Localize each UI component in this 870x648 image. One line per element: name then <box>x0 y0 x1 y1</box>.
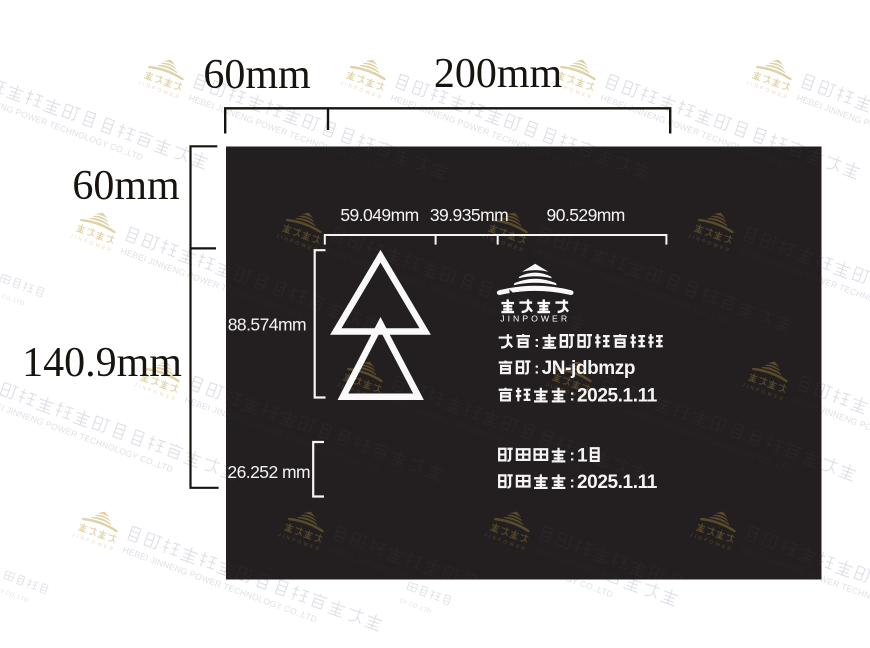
svg-text::: : <box>534 361 539 378</box>
svg-text::: : <box>570 388 575 405</box>
svg-text:JINPOWER: JINPOWER <box>500 314 570 324</box>
svg-text:1: 1 <box>577 445 588 466</box>
svg-text:200mm: 200mm <box>434 51 563 97</box>
svg-text:90.529mm: 90.529mm <box>547 205 625 225</box>
svg-text:60mm: 60mm <box>72 163 180 209</box>
svg-text::: : <box>570 474 575 491</box>
svg-text:140.9mm: 140.9mm <box>22 340 182 386</box>
svg-text:60mm: 60mm <box>203 52 311 98</box>
svg-text:26.252 mm: 26.252 mm <box>227 462 310 482</box>
svg-text:59.049mm: 59.049mm <box>340 205 418 225</box>
svg-text:2025.1.11: 2025.1.11 <box>577 472 658 493</box>
svg-text::: : <box>534 334 539 351</box>
svg-text:88.574mm: 88.574mm <box>228 315 306 335</box>
svg-text:2025.1.11: 2025.1.11 <box>577 385 658 406</box>
svg-text:JN-jdbmzp: JN-jdbmzp <box>542 358 636 379</box>
svg-text:39.935mm: 39.935mm <box>430 205 508 225</box>
svg-text::: : <box>570 448 575 465</box>
